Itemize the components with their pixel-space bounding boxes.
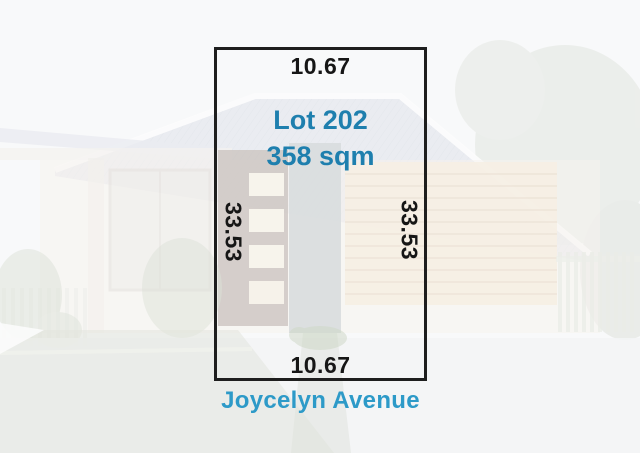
dimension-left: 33.53: [220, 202, 247, 262]
lot-area-label: 358 sqm: [214, 138, 427, 174]
dimension-bottom: 10.67: [214, 352, 427, 379]
lot-number-label: Lot 202: [214, 102, 427, 138]
dimension-top: 10.67: [214, 53, 427, 80]
street-name-label: Joycelyn Avenue: [214, 387, 427, 415]
lot-info: Lot 202 358 sqm: [214, 102, 427, 174]
dimension-right: 33.53: [396, 200, 423, 260]
listing-image: 10.67 Lot 202 358 sqm 33.53 33.53 10.67 …: [0, 0, 640, 453]
